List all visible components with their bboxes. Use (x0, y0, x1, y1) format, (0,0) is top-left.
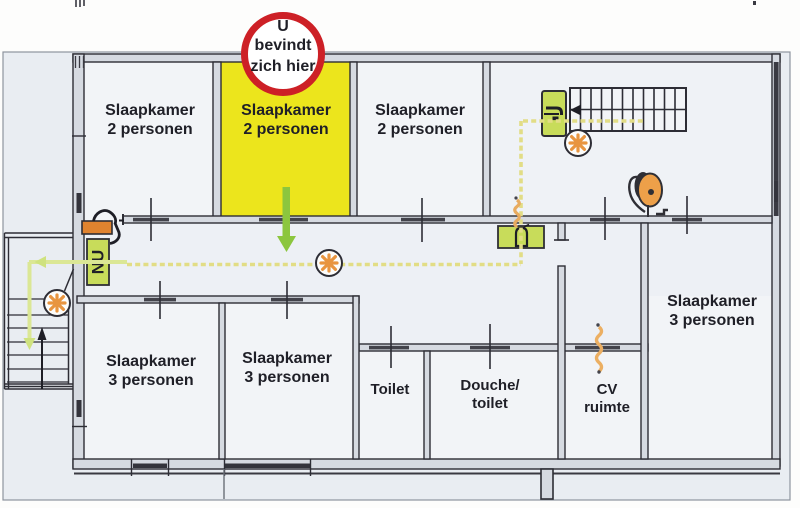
svg-text:toilet: toilet (472, 395, 508, 412)
svg-text:3 personen: 3 personen (108, 372, 193, 389)
svg-text:Slaapkamer: Slaapkamer (242, 350, 332, 367)
svg-text:bevindt: bevindt (255, 37, 313, 54)
svg-text:2 personen: 2 personen (377, 121, 462, 138)
svg-text:zich hier: zich hier (251, 58, 316, 75)
svg-text:3 personen: 3 personen (669, 312, 754, 329)
svg-text:Slaapkamer: Slaapkamer (667, 293, 757, 310)
svg-text:Slaapkamer: Slaapkamer (106, 353, 196, 370)
svg-text:2 personen: 2 personen (243, 121, 328, 138)
svg-text:Slaapkamer: Slaapkamer (105, 102, 195, 119)
svg-text:Slaapkamer: Slaapkamer (241, 102, 331, 119)
svg-text:U: U (277, 18, 289, 35)
svg-text:CV: CV (597, 381, 618, 398)
svg-text:3 personen: 3 personen (244, 369, 329, 386)
svg-text:ruimte: ruimte (584, 399, 630, 416)
svg-text:2 personen: 2 personen (107, 121, 192, 138)
svg-text:Slaapkamer: Slaapkamer (375, 102, 465, 119)
svg-text:Douche/: Douche/ (460, 377, 520, 394)
svg-text:Toilet: Toilet (371, 381, 410, 398)
